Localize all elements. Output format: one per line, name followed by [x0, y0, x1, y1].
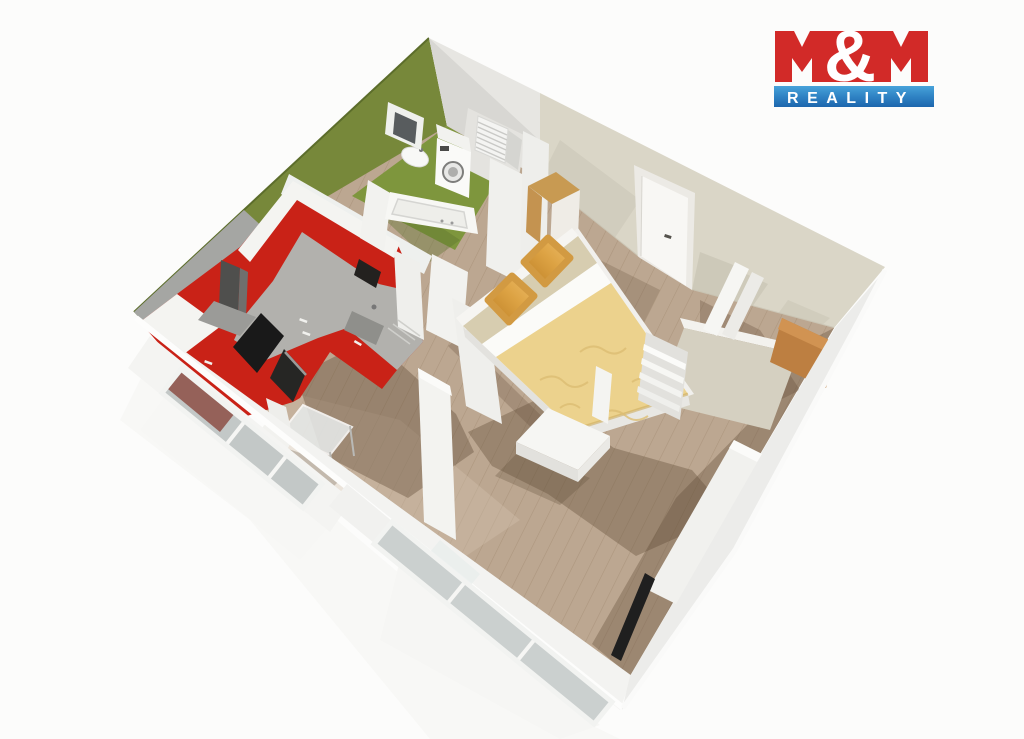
svg-text:REALITY: REALITY [787, 90, 915, 107]
svg-text:&: & [824, 17, 876, 97]
